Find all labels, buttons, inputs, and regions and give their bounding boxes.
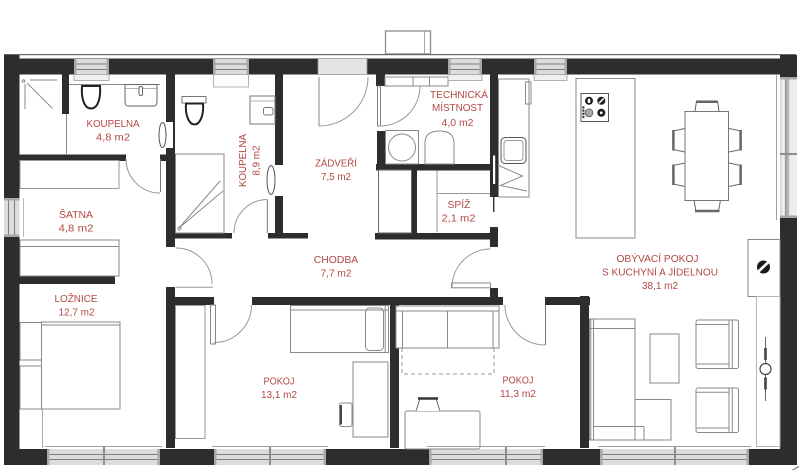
svg-text:11,3 m2: 11,3 m2 [500, 389, 536, 400]
svg-text:38,1 m2: 38,1 m2 [642, 281, 678, 292]
svg-text:2,1 m2: 2,1 m2 [442, 214, 476, 225]
svg-text:POKOJ: POKOJ [503, 376, 534, 387]
svg-text:TECHNICKÁ: TECHNICKÁ [430, 88, 488, 101]
svg-text:MÍSTNOST: MÍSTNOST [432, 101, 484, 114]
svg-text:POKOJ: POKOJ [264, 377, 295, 388]
svg-text:4,8 m2: 4,8 m2 [59, 224, 94, 235]
svg-text:4,0 m2: 4,0 m2 [442, 118, 474, 129]
svg-text:S KUCHYNÍ A JÍDELNOU: S KUCHYNÍ A JÍDELNOU [602, 266, 718, 279]
svg-text:CHODBA: CHODBA [314, 255, 359, 266]
svg-text:12,7 m2: 12,7 m2 [59, 308, 95, 319]
svg-text:SPÍŽ: SPÍŽ [448, 198, 472, 211]
svg-text:ŠATNA: ŠATNA [59, 208, 93, 221]
svg-text:13,1 m2: 13,1 m2 [261, 390, 297, 401]
svg-text:KOUPELNA: KOUPELNA [87, 119, 140, 130]
svg-text:LOŽNICE: LOŽNICE [55, 292, 98, 305]
svg-text:ZÁDVEŘÍ: ZÁDVEŘÍ [315, 157, 357, 170]
svg-text:KOUPELNA: KOUPELNA [238, 134, 249, 187]
svg-text:7,5 m2: 7,5 m2 [321, 172, 351, 183]
svg-text:OBÝVACÍ POKOJ: OBÝVACÍ POKOJ [617, 252, 699, 265]
svg-text:4,8 m2: 4,8 m2 [96, 133, 130, 144]
svg-text:7,7 m2: 7,7 m2 [321, 269, 352, 280]
svg-text:8,9 m2: 8,9 m2 [252, 145, 263, 175]
